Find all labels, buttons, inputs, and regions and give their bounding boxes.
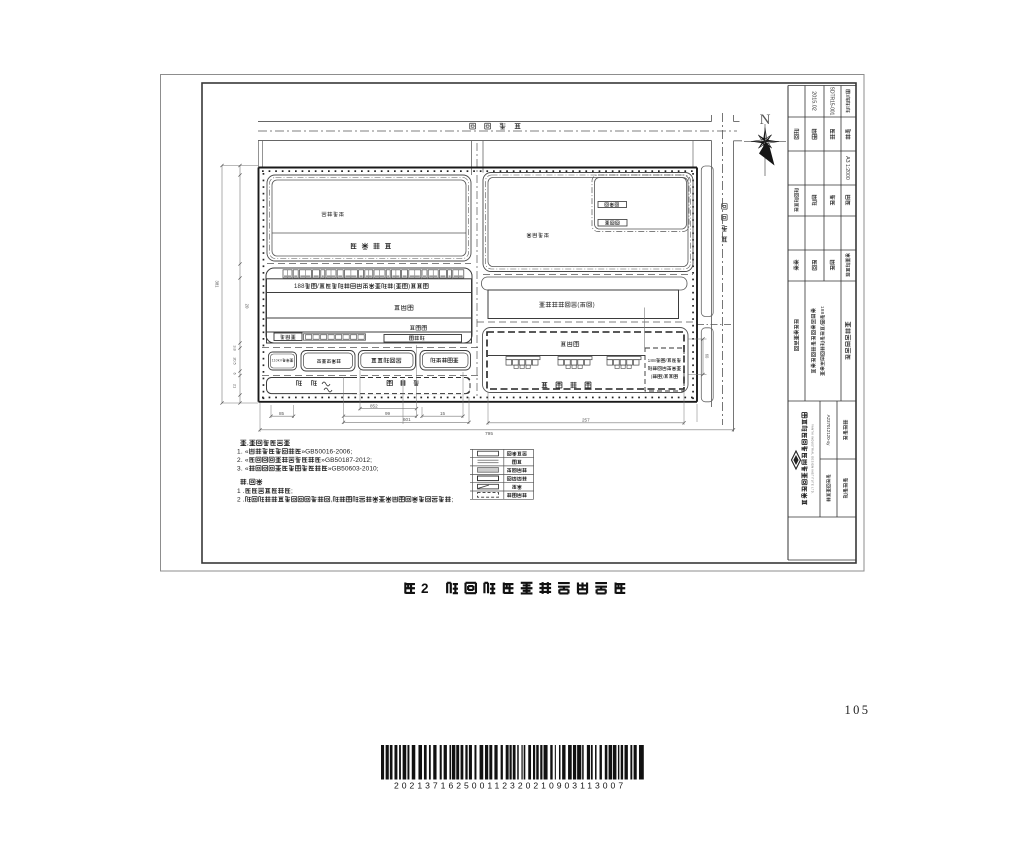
svg-text:15: 15 [440,411,446,416]
svg-text:A237012120-sy: A237012120-sy [826,415,831,447]
svg-text:1: 1 [845,94,850,97]
svg-text:,: , [247,479,249,486]
svg-text:6: 6 [233,372,238,374]
svg-text:N: N [760,112,771,128]
svg-text:3.8: 3.8 [233,345,238,350]
svg-text:60: 60 [704,354,709,359]
svg-text:99: 99 [385,411,391,416]
svg-text:110kV: 110kV [272,359,283,363]
svg-text:/: / [665,358,667,363]
svg-text:SDTR15-001: SDTR15-001 [829,87,835,116]
svg-text:): ) [408,284,410,290]
svg-text:2015.02: 2015.02 [811,91,817,111]
svg-text:188: 188 [648,358,656,363]
svg-text:202137162500112320210903113007: 202137162500112320210903113007 [394,781,626,791]
svg-text:188: 188 [819,306,825,315]
svg-text:105: 105 [845,703,871,717]
svg-text:;: ; [291,488,293,495]
svg-text:2. «: 2. « [237,457,249,464]
svg-text:A3 1:2000: A3 1:2000 [844,156,850,180]
svg-text:,: , [247,440,249,447]
svg-text:3. «: 3. « [237,466,249,473]
svg-text:(: ( [651,374,653,379]
svg-text:2.: 2. [237,497,245,504]
svg-text:»GB50603-2010;: »GB50603-2010; [328,466,379,473]
svg-text:(: ( [577,302,579,309]
svg-text:20.5: 20.5 [233,357,238,364]
svg-text:2: 2 [421,581,429,596]
svg-text:,: , [331,497,333,504]
svg-text:;: ; [451,497,453,504]
svg-text:YANTAI INDUSTRIAL DESIGN INSTI: YANTAI INDUSTRIAL DESIGN INSTITUTE LTD. [811,424,815,494]
svg-text:1.: 1. [237,488,245,495]
svg-text:/: / [317,284,319,290]
svg-text:»GB50016-2006;: »GB50016-2006; [301,449,352,456]
svg-text:»GB50187-2012;: »GB50187-2012; [321,457,372,464]
svg-text:188: 188 [294,284,305,290]
svg-text:257: 257 [582,418,590,423]
svg-text:): ) [593,302,595,309]
svg-text:795: 795 [485,431,493,437]
svg-text:/: / [819,325,825,327]
svg-text:20: 20 [244,304,249,309]
svg-text:): ) [662,374,664,379]
svg-text:1. «: 1. « [237,449,249,456]
svg-text:601: 601 [403,417,411,422]
svg-text:21: 21 [233,384,238,388]
svg-text:381: 381 [214,281,219,289]
svg-text:852: 852 [370,403,378,408]
svg-text:85: 85 [279,411,285,416]
svg-text:1: 1 [845,106,850,109]
svg-text:(: ( [394,284,396,290]
